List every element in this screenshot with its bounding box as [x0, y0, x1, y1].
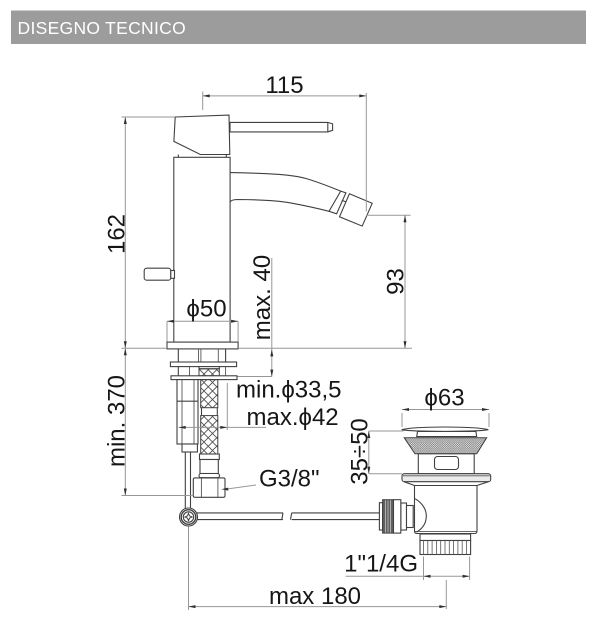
svg-text:35÷50: 35÷50	[346, 418, 373, 485]
svg-text:ϕ50: ϕ50	[186, 296, 226, 323]
svg-text:93: 93	[382, 268, 409, 295]
svg-text:max. 40: max. 40	[249, 255, 276, 340]
svg-text:ϕ63: ϕ63	[424, 385, 464, 412]
svg-text:1"1/4G: 1"1/4G	[344, 551, 418, 578]
svg-text:G3/8": G3/8"	[259, 466, 320, 493]
svg-text:DISEGNO TECNICO: DISEGNO TECNICO	[18, 18, 187, 38]
svg-text:min. 370: min. 370	[103, 375, 130, 467]
svg-text:min.ϕ33,5: min.ϕ33,5	[236, 377, 342, 404]
svg-text:max.ϕ42: max.ϕ42	[247, 404, 339, 431]
svg-text:115: 115	[265, 72, 303, 99]
svg-text:162: 162	[103, 214, 130, 254]
svg-text:max 180: max 180	[269, 583, 361, 610]
